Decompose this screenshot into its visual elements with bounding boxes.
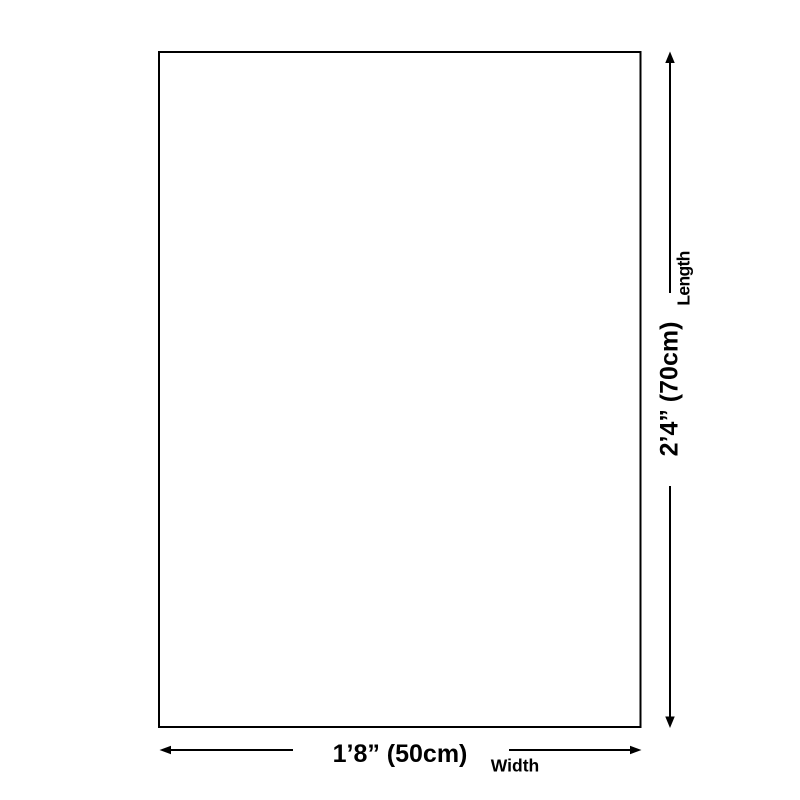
svg-text:1’8” (50cm): 1’8” (50cm): [333, 740, 468, 768]
svg-text:Length: Length: [674, 251, 694, 305]
svg-text:2’4” (70cm): 2’4” (70cm): [656, 322, 684, 457]
svg-text:Width: Width: [491, 755, 539, 775]
